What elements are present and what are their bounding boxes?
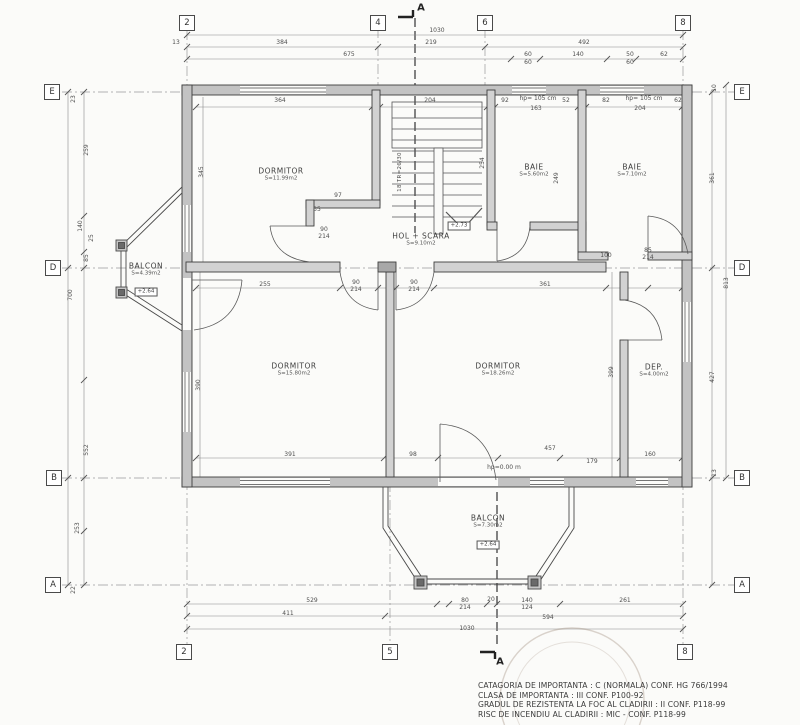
- dim-label: 204: [634, 106, 645, 112]
- label-overlay: 103013384219492675601405062606036420492h…: [0, 0, 800, 725]
- dim-label: 1030: [459, 626, 474, 632]
- dim-label: 124: [521, 605, 532, 611]
- dim-label: 529: [306, 598, 317, 604]
- dim-label: 700: [68, 289, 74, 300]
- info-line: GRADUL DE REZISTENTA LA FOC AL CLADIRII …: [478, 700, 728, 710]
- elevation-box: +2.64: [135, 288, 158, 297]
- dim-label: 13: [172, 40, 180, 46]
- grid-marker-2: 2: [179, 15, 195, 31]
- dim-label: 204: [424, 98, 435, 104]
- dim-label: 10: [712, 84, 718, 92]
- dim-label: 391: [284, 452, 295, 458]
- dim-label: 411: [282, 611, 293, 617]
- room-name: HOL + SCARA: [392, 233, 449, 241]
- room-name: DORMITOR: [258, 168, 303, 176]
- dim-label: 457: [544, 446, 555, 452]
- info-line: CATAGORIA DE IMPORTANTA : C (NORMALA) CO…: [478, 681, 728, 691]
- room-area: S=9.10m2: [392, 241, 449, 248]
- dim-label: 92: [501, 98, 509, 104]
- dim-label: 85: [84, 254, 90, 262]
- elevation-box: +2.64: [477, 541, 500, 550]
- section-marker-label: A: [496, 657, 504, 668]
- dim-label: hp= 105 cm: [519, 96, 556, 102]
- dim-label: 390: [196, 379, 202, 390]
- dim-label: 62: [674, 98, 682, 104]
- room-name: BALCON: [471, 515, 505, 523]
- title-block: CATAGORIA DE IMPORTANTA : C (NORMALA) CO…: [478, 681, 728, 720]
- room-label: BALCONS=7.30m2: [471, 515, 505, 530]
- dim-label: 361: [539, 282, 550, 288]
- dim-label: 60: [524, 52, 532, 58]
- room-area: S=7.10m2: [617, 172, 646, 179]
- room-name: DEP.: [639, 364, 668, 372]
- dim-label: 675: [343, 52, 354, 58]
- dim-label: 82: [602, 98, 610, 104]
- room-name: BAIE: [617, 164, 646, 172]
- dim-label: 255: [259, 282, 270, 288]
- room-label: DORMITORS=11.99m2: [258, 168, 303, 183]
- dim-label: 219: [425, 40, 436, 46]
- dim-label: 60: [524, 60, 532, 66]
- info-line: CLASA DE IMPORTANTA : III CONF. P100-92: [478, 691, 728, 701]
- room-label: BAIES=7.10m2: [617, 164, 646, 179]
- dim-label: 97: [334, 193, 342, 199]
- dim-label: 98: [409, 452, 417, 458]
- dim-label: 364: [274, 98, 285, 104]
- dim-label: 22: [71, 586, 77, 594]
- grid-marker-8: 8: [675, 15, 691, 31]
- room-name: DORMITOR: [475, 363, 520, 371]
- dim-label: 361: [710, 172, 716, 183]
- room-label: DEP.S=4.00m2: [639, 364, 668, 379]
- grid-marker-D: D: [734, 260, 750, 276]
- dim-label: 13: [712, 469, 718, 477]
- dim-label: 492: [578, 40, 589, 46]
- room-area: S=11.99m2: [258, 176, 303, 183]
- dim-label: 35: [313, 207, 321, 213]
- room-label: HOL + SCARAS=9.10m2: [392, 233, 449, 248]
- dim-label: 62: [660, 52, 668, 58]
- grid-marker-B: B: [46, 470, 62, 486]
- grid-marker-5: 5: [382, 644, 398, 660]
- room-area: S=7.30m2: [471, 523, 505, 530]
- room-area: S=15.80m2: [271, 371, 316, 378]
- dim-label: 384: [276, 40, 287, 46]
- room-name: DORMITOR: [271, 363, 316, 371]
- room-name: BALCON: [129, 263, 163, 271]
- dim-label: 20: [487, 597, 495, 603]
- grid-marker-8: 8: [677, 644, 693, 660]
- dim-label: 140: [572, 52, 583, 58]
- room-area: S=4.00m2: [639, 372, 668, 379]
- dim-label: 345: [199, 166, 205, 177]
- dim-label: 50: [626, 52, 634, 58]
- room-label: BAIES=5.60m2: [519, 164, 548, 179]
- dim-label: 60: [626, 60, 634, 66]
- grid-marker-A: A: [734, 577, 750, 593]
- room-area: S=5.60m2: [519, 172, 548, 179]
- room-label: DORMITORS=15.80m2: [271, 363, 316, 378]
- room-label: DORMITORS=18.26m2: [475, 363, 520, 378]
- grid-marker-4: 4: [370, 15, 386, 31]
- grid-marker-E: E: [734, 84, 750, 100]
- dim-label: 594: [542, 615, 553, 621]
- dim-label: 160: [644, 452, 655, 458]
- dim-label: 214: [318, 234, 329, 240]
- dim-label: 179: [586, 459, 597, 465]
- floor-plan-page: 103013384219492675601405062606036420492h…: [0, 0, 800, 725]
- dim-label: 261: [619, 598, 630, 604]
- grid-marker-B: B: [734, 470, 750, 486]
- room-name: BAIE: [519, 164, 548, 172]
- dim-label: 399: [609, 366, 615, 377]
- room-label: BALCONS=4.39m2: [129, 263, 163, 278]
- dim-label: 253: [75, 522, 81, 533]
- dim-label: 1030: [429, 28, 444, 34]
- dim-label: 249: [554, 172, 560, 183]
- grid-marker-2: 2: [176, 644, 192, 660]
- grid-marker-6: 6: [477, 15, 493, 31]
- dim-label: 140: [78, 220, 84, 231]
- section-marker-label: A: [417, 3, 425, 14]
- grid-marker-E: E: [44, 84, 60, 100]
- dim-label: 163: [530, 106, 541, 112]
- room-area: S=4.39m2: [129, 271, 163, 278]
- grid-marker-A: A: [45, 577, 61, 593]
- dim-label: 552: [84, 444, 90, 455]
- grid-marker-D: D: [45, 260, 61, 276]
- dim-label: 23: [71, 95, 77, 103]
- room-area: S=18.26m2: [475, 371, 520, 378]
- dim-label: 214: [642, 255, 653, 261]
- elevation-box: +2.73: [448, 222, 471, 231]
- dim-label: hp=0.00 m: [487, 465, 521, 471]
- dim-label: 214: [408, 287, 419, 293]
- info-line: RISC DE INCENDIU AL CLADIRII : MIC - CON…: [478, 710, 728, 720]
- dim-label: 427: [710, 371, 716, 382]
- dim-label: 254: [480, 157, 486, 168]
- stair-note: 18 TR=26/30: [397, 152, 403, 192]
- dim-label: 813: [724, 277, 730, 288]
- dim-label: 259: [84, 144, 90, 155]
- dim-label: 100: [600, 253, 611, 259]
- dim-label: hp= 105 cm: [625, 96, 662, 102]
- dim-label: 25: [89, 234, 95, 242]
- dim-label: 52: [562, 98, 570, 104]
- dim-label: 214: [459, 605, 470, 611]
- dim-label: 214: [350, 287, 361, 293]
